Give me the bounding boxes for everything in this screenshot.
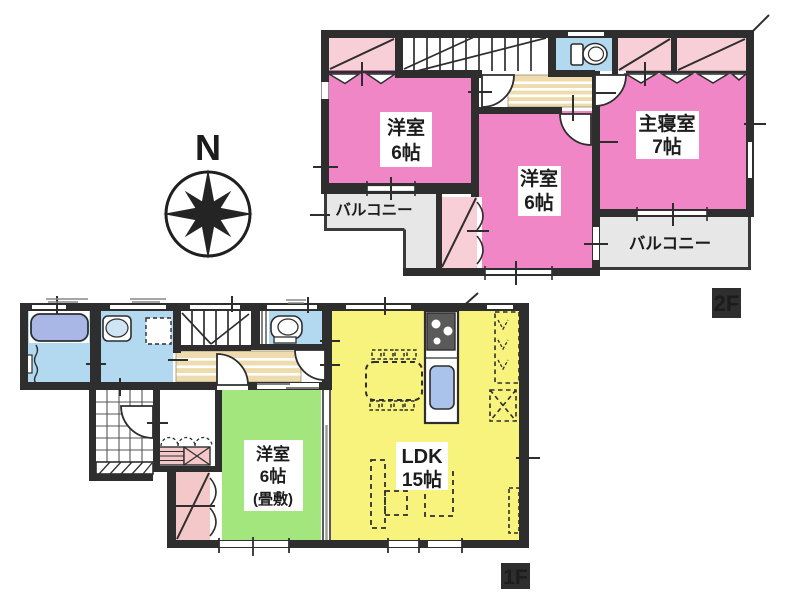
svg-text:6帖: 6帖 bbox=[524, 191, 554, 214]
svg-text:2F: 2F bbox=[714, 291, 740, 316]
svg-text:洋室: 洋室 bbox=[520, 167, 558, 190]
svg-text:1F: 1F bbox=[503, 566, 528, 589]
svg-text:6帖: 6帖 bbox=[391, 141, 421, 164]
svg-text:15帖: 15帖 bbox=[402, 468, 442, 491]
svg-text:洋室: 洋室 bbox=[256, 444, 290, 464]
svg-text:バルコニー: バルコニー bbox=[629, 235, 711, 253]
svg-text:7帖: 7帖 bbox=[652, 135, 682, 158]
svg-text:(畳敷): (畳敷) bbox=[253, 490, 293, 508]
svg-text:LDK: LDK bbox=[401, 446, 443, 468]
svg-text:バルコニー: バルコニー bbox=[335, 201, 412, 219]
svg-text:洋室: 洋室 bbox=[387, 116, 425, 139]
svg-text:N: N bbox=[195, 127, 221, 168]
svg-text:6帖: 6帖 bbox=[260, 466, 286, 486]
svg-text:主寝室: 主寝室 bbox=[638, 112, 695, 135]
